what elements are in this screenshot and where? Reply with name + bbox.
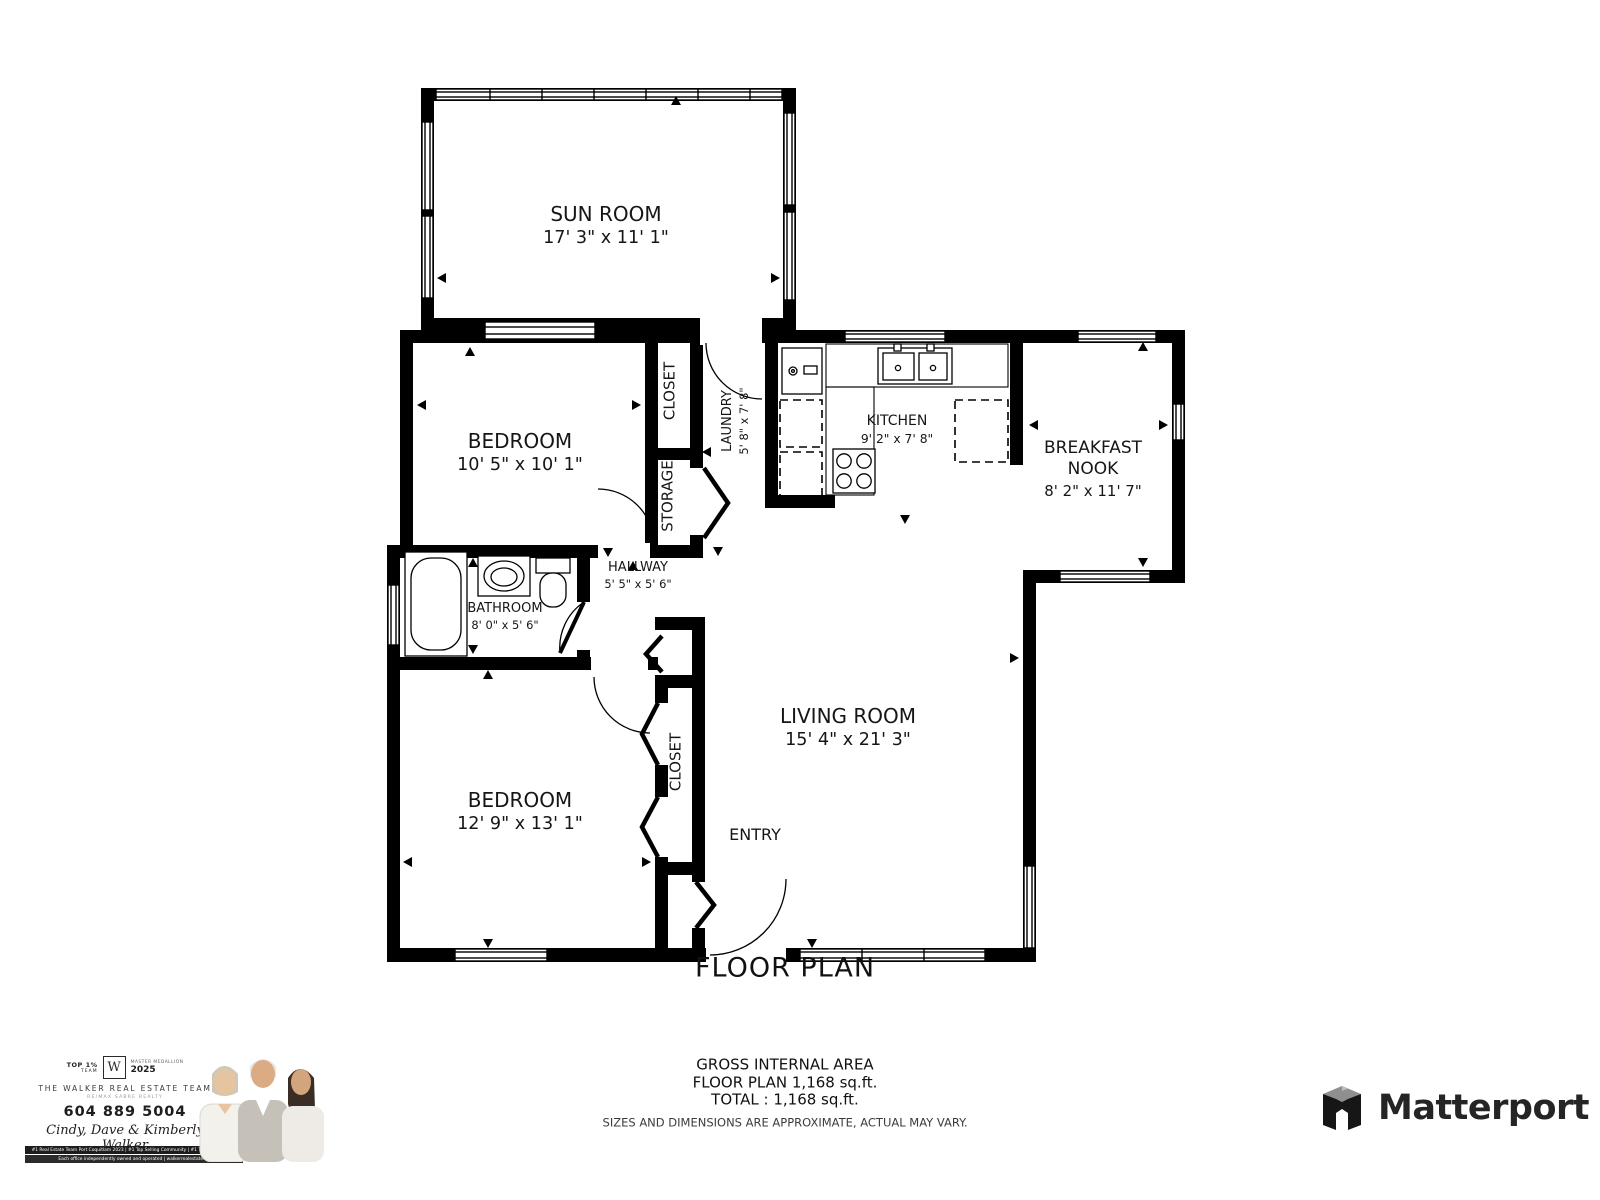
walker-w-logo: W <box>103 1056 126 1079</box>
person-center <box>238 1059 288 1162</box>
matterport-wordmark: Matterport <box>1378 1088 1589 1128</box>
room-label-sun-room: SUN ROOM 17' 3" x 11' 1" <box>543 202 669 250</box>
floor-plan-page: { "title": "FLOOR PLAN", "rooms": { "sun… <box>0 0 1600 1200</box>
bathtub-icon <box>405 552 467 656</box>
toilet-icon <box>536 558 570 607</box>
room-label-laundry: LAUNDRY 5' 8" x 7' 8" <box>720 387 752 454</box>
page-title: FLOOR PLAN <box>695 953 875 984</box>
matterport-logo: Matterport <box>1318 1084 1589 1132</box>
total-area-value: TOTAL : 1,168 sq.ft. <box>603 1092 968 1110</box>
washer-icon <box>782 348 822 394</box>
agent-branding-card: TOP 1% TEAM W MASTER MEDALLION 2025 THE … <box>25 1042 320 1164</box>
area-summary: GROSS INTERNAL AREA FLOOR PLAN 1,168 sq.… <box>603 1056 968 1129</box>
bathroom-sink-icon <box>478 556 530 596</box>
medallion-badge: MASTER MEDALLION 2025 <box>131 1060 184 1075</box>
room-label-breakfast-nook: BREAKFAST NOOK 8' 2" x 11' 7" <box>1044 438 1142 500</box>
room-label-kitchen: KITCHEN 9' 2" x 7' 8" <box>861 413 933 447</box>
gross-internal-area-label: GROSS INTERNAL AREA <box>603 1056 968 1074</box>
room-label-bedroom-top: BEDROOM 10' 5" x 10' 1" <box>457 429 583 477</box>
room-label-living-room: LIVING ROOM 15' 4" x 21' 3" <box>780 704 916 752</box>
stove-icon <box>833 449 875 493</box>
floor-plan-drawing <box>0 0 1600 1200</box>
person-right <box>282 1069 324 1162</box>
matterport-icon <box>1318 1084 1366 1132</box>
room-label-storage: STORAGE <box>659 460 678 531</box>
floor-plan-area-value: FLOOR PLAN 1,168 sq.ft. <box>603 1074 968 1092</box>
kitchen-sink-icon <box>878 344 952 384</box>
room-label-bathroom: BATHROOM 8' 0" x 5' 6" <box>467 601 542 633</box>
room-label-hallway: HALLWAY 5' 5" x 5' 6" <box>604 560 671 592</box>
disclaimer-text: SIZES AND DIMENSIONS ARE APPROXIMATE, AC… <box>603 1116 968 1130</box>
team-photo <box>194 1044 334 1162</box>
room-label-closet-top: CLOSET <box>661 362 680 420</box>
room-label-bedroom-bottom: BEDROOM 12' 9" x 13' 1" <box>457 788 583 836</box>
room-label-closet-bottom: CLOSET <box>667 733 686 791</box>
top1-badge: TOP 1% TEAM <box>67 1061 98 1074</box>
room-label-entry: ENTRY <box>729 825 781 845</box>
